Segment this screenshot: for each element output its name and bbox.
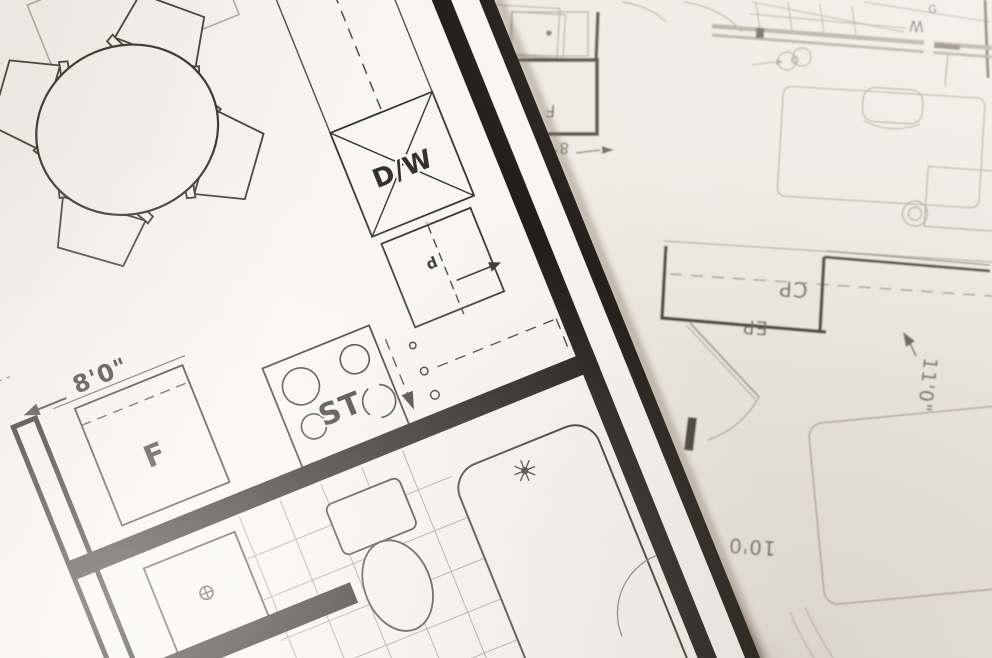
g-mark-label: G [928, 3, 938, 16]
entry-panel-label: EP [742, 315, 769, 339]
blueprint-scene: F 8'0" W G [0, 0, 992, 658]
dim-10ft-label: 10'0 [727, 533, 776, 560]
closet-wall [596, 12, 598, 62]
knob-dot [546, 30, 552, 36]
door-hinge [756, 28, 765, 39]
door-gap [923, 38, 934, 55]
closet-label: CP [778, 276, 809, 302]
washer-label: W [908, 17, 925, 36]
blueprint-photo: F 8'0" W G [0, 0, 992, 658]
